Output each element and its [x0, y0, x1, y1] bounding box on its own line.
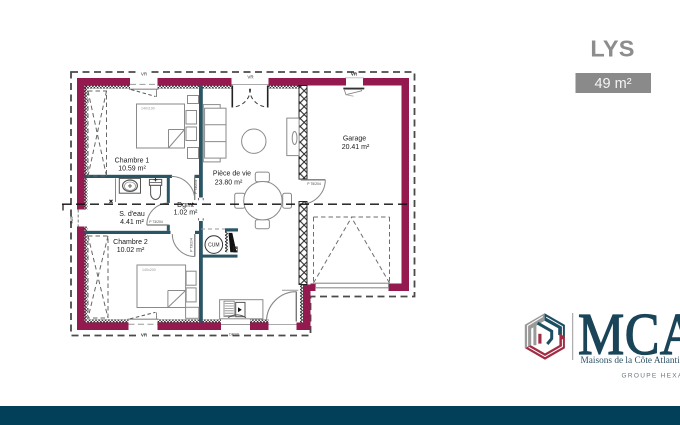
- svg-text:P 73/204: P 73/204: [189, 238, 193, 252]
- svg-text:10.59 m²: 10.59 m²: [118, 166, 146, 173]
- svg-text:1.02 m²: 1.02 m²: [174, 210, 198, 217]
- svg-text:140x200: 140x200: [142, 268, 156, 272]
- svg-text:VR: VR: [351, 72, 358, 77]
- svg-text:P 73/204: P 73/204: [194, 180, 198, 194]
- svg-text:10.02 m²: 10.02 m²: [117, 247, 145, 254]
- svg-text:Chambre 1: Chambre 1: [115, 158, 150, 165]
- svg-text:P 73/204: P 73/204: [149, 220, 163, 224]
- svg-text:S. d'eau: S. d'eau: [119, 211, 145, 218]
- svg-text:49 m²: 49 m²: [594, 76, 631, 92]
- svg-text:Chambre 2: Chambre 2: [113, 239, 148, 246]
- svg-text:23.80 m²: 23.80 m²: [215, 180, 243, 187]
- svg-text:VR: VR: [141, 333, 148, 338]
- svg-text:GROUPE HEXAOM: GROUPE HEXAOM: [622, 373, 680, 380]
- svg-text:Dgmt: Dgmt: [177, 202, 194, 209]
- svg-text:9x9: 9x9: [69, 216, 74, 224]
- svg-text:4.41 m²: 4.41 m²: [120, 219, 144, 226]
- svg-text:P 75/204: P 75/204: [307, 182, 321, 186]
- svg-text:CUM: CUM: [208, 243, 219, 249]
- svg-text:VR: VR: [247, 75, 254, 80]
- svg-text:Maisons de la Côte Atlantique: Maisons de la Côte Atlantique: [581, 356, 680, 366]
- svg-text:LYS: LYS: [590, 36, 634, 62]
- svg-text:Garage: Garage: [343, 136, 366, 143]
- svg-text:140x190: 140x190: [141, 107, 155, 111]
- svg-text:VR: VR: [141, 72, 148, 77]
- svg-text:20.41 m²: 20.41 m²: [342, 144, 370, 151]
- svg-text:DP30: DP30: [229, 332, 240, 337]
- svg-text:Pièce de vie: Pièce de vie: [213, 171, 251, 178]
